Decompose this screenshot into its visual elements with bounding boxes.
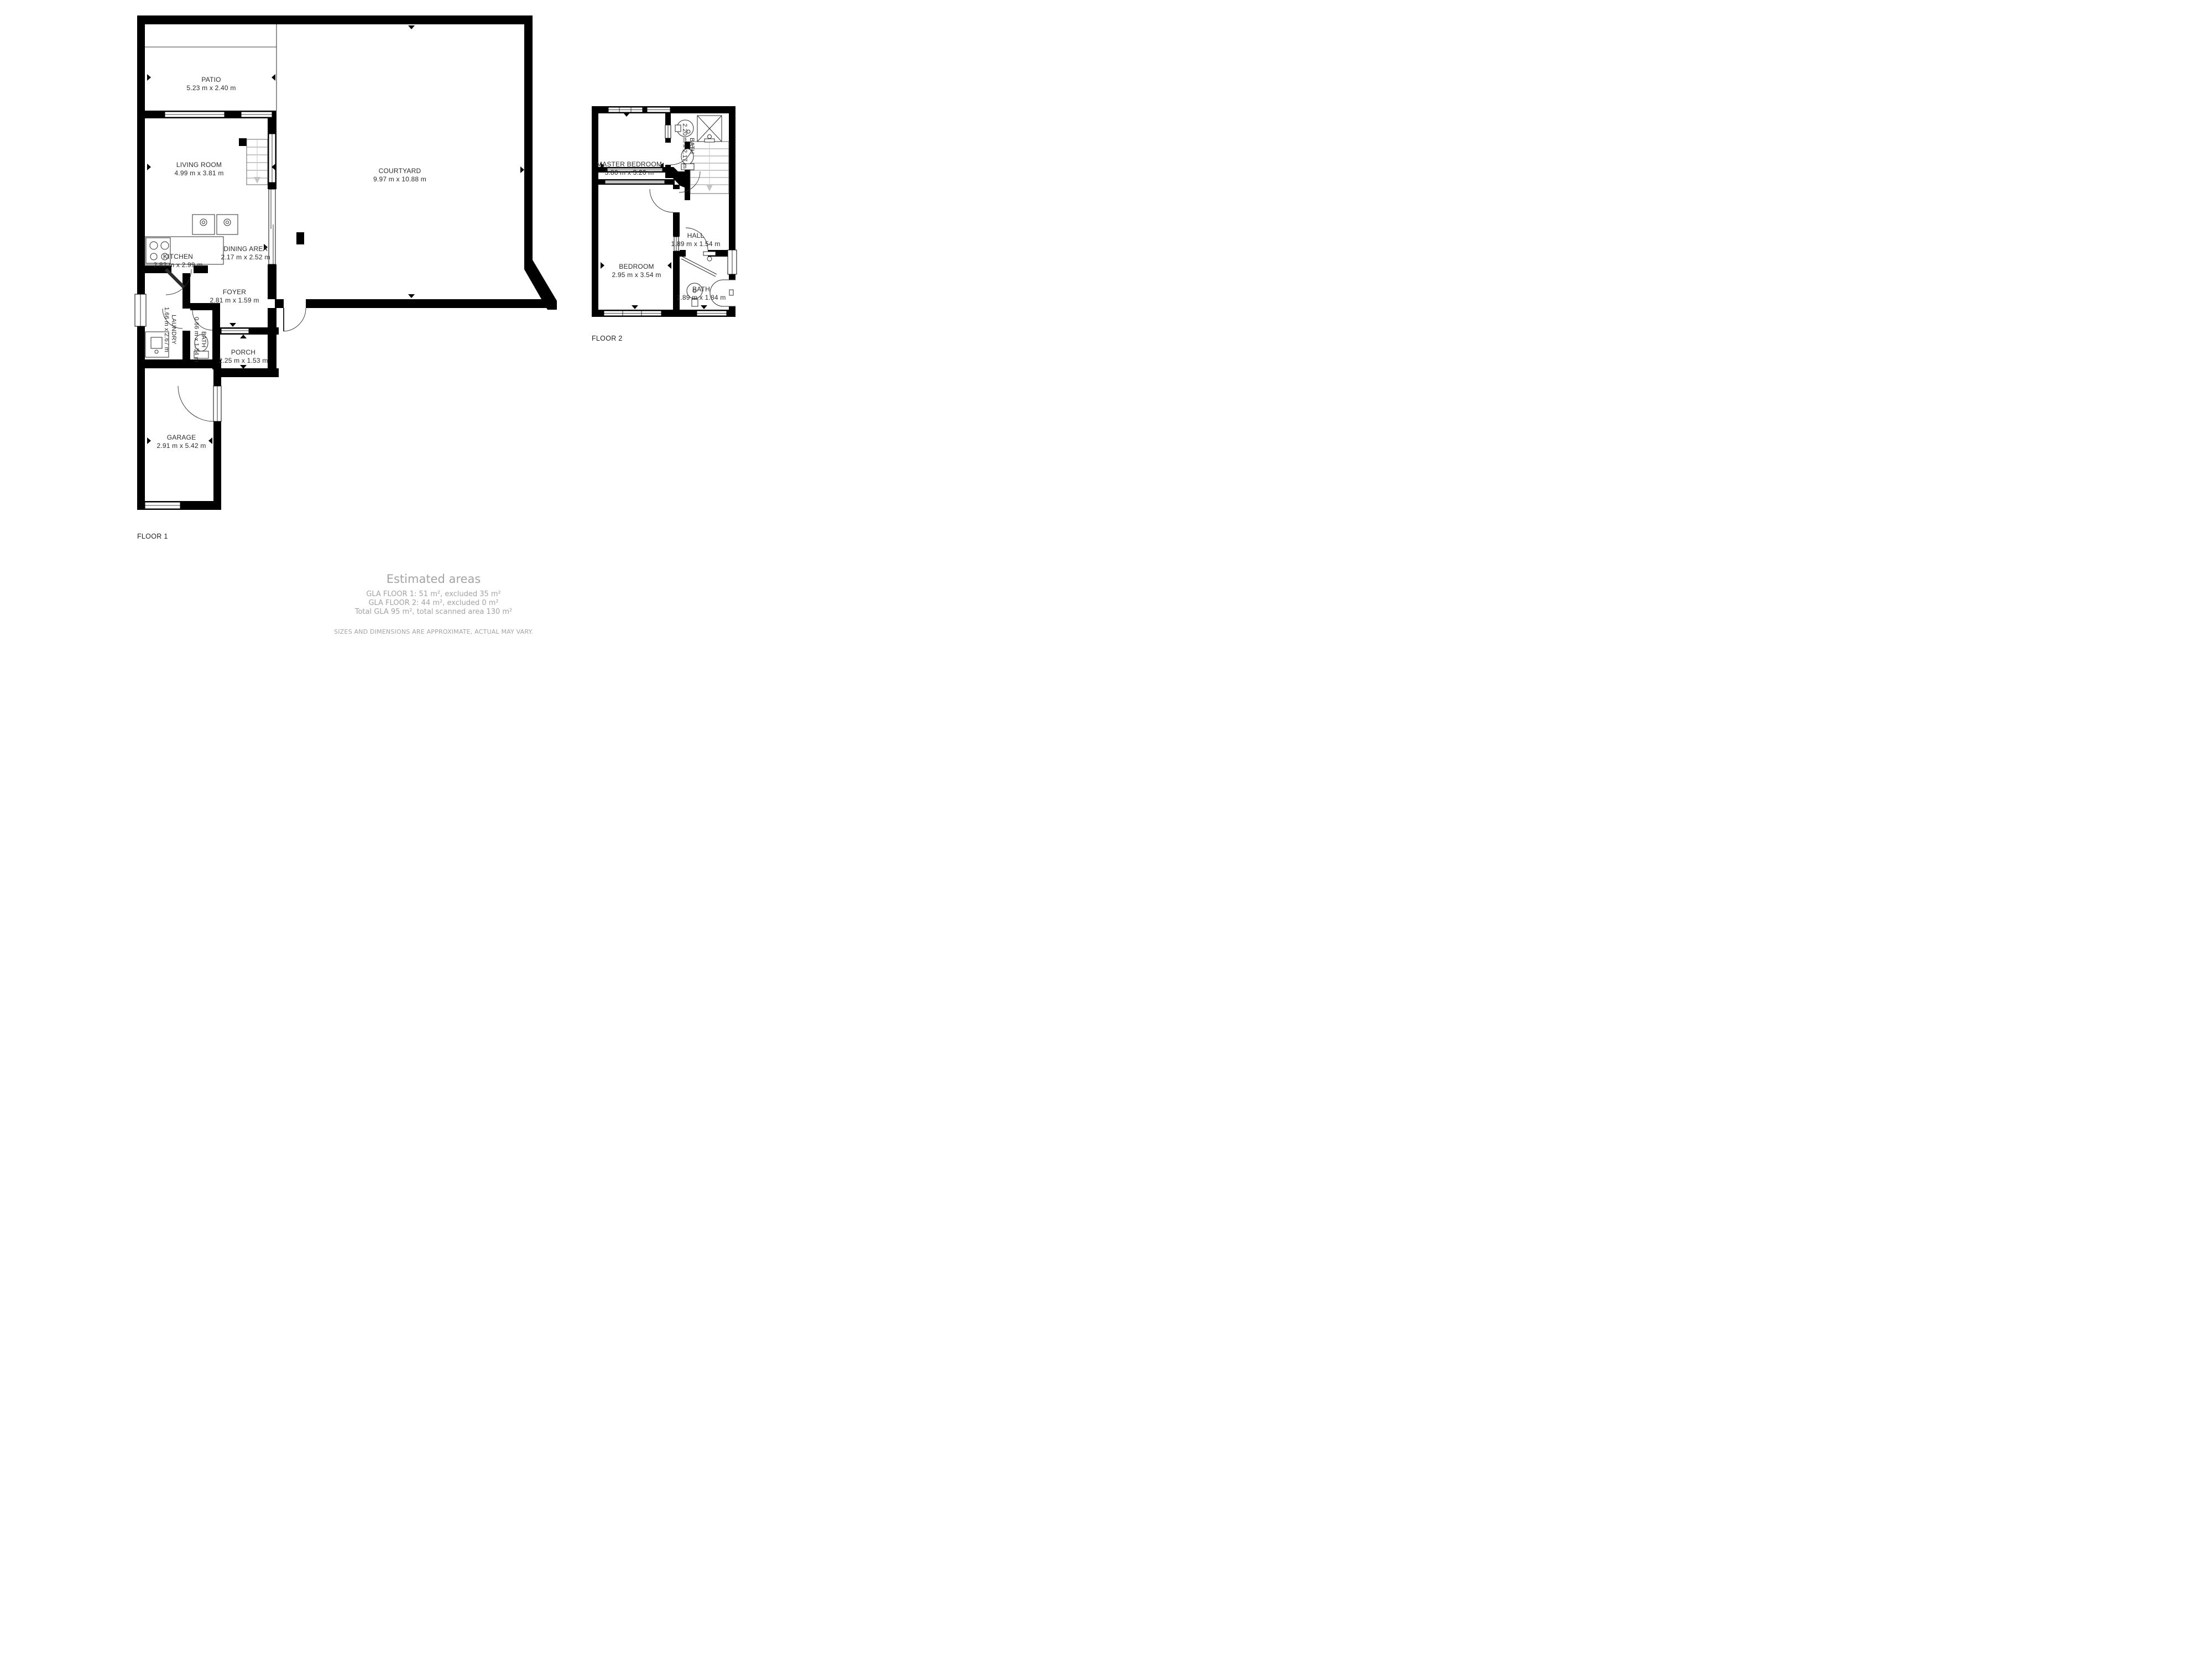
room-label-foyer: FOYER 2.81 m x 1.59 m [210,288,259,305]
room-name: PORCH [218,348,268,357]
staircase-icon [247,139,268,185]
room-dims: 3.86 m x 3.20 m [597,169,662,177]
room-name: BATH [200,317,207,362]
room-name: GARAGE [156,434,206,442]
floor2-tag: FLOOR 2 [592,335,623,342]
disclaimer-text: SIZES AND DIMENSIONS ARE APPROXIMATE, AC… [334,628,533,635]
kitchen-sink-icon [192,215,238,234]
estimated-areas-title: Estimated areas [355,572,513,586]
gla-floor1-line: GLA FLOOR 1: 51 m², excluded 35 m² [355,590,513,599]
room-name: BATH [676,285,726,294]
room-dims: 2.91 m x 5.42 m [156,442,206,450]
room-label-bedroom: BEDROOM 2.95 m x 3.54 m [612,263,661,279]
room-name: COURTYARD [373,167,426,175]
room-label-bath-bottom: BATH 1.89 m x 1.84 m [676,285,726,302]
room-label-patio: PATIO 5.23 m x 2.40 m [186,76,236,92]
room-dims: 0.66 m x 1.54 m [192,317,200,362]
room-name: DINING AREA [221,245,270,253]
floorplan-page: PATIO 5.23 m x 2.40 m LIVING ROOM 4.99 m… [0,0,867,650]
room-label-porch: PORCH 2.25 m x 1.53 m [218,348,268,365]
room-name: BEDROOM [612,263,661,271]
room-label-dining-area: DINING AREA 2.17 m x 2.52 m [221,245,270,262]
room-label-garage: GARAGE 2.91 m x 5.42 m [156,434,206,450]
estimated-areas-block: Estimated areas GLA FLOOR 1: 51 m², excl… [355,572,513,617]
room-name: KITCHEN [153,253,202,261]
room-label-master-bedroom: MASTER BEDROOM 3.86 m x 3.20 m [597,160,662,177]
room-label-bath-top: BATH 2.20 m x 2.17 m [681,123,695,169]
room-dims: 2.17 m x 2.52 m [221,253,270,262]
staircase-icon-floor2 [690,142,729,194]
room-label-kitchen: KITCHEN 2.82 m x 2.99 m [153,253,202,269]
room-name: MASTER BEDROOM [597,160,662,169]
room-dims: 1.89 m x 1.54 m [671,240,720,248]
gla-total-line: Total GLA 95 m², total scanned area 130 … [355,608,513,617]
room-label-laundry: LAUNDRY 1.66 m x 2.67 m [163,307,177,352]
room-dims: 1.66 m x 2.67 m [163,307,170,352]
room-dims: 2.81 m x 1.59 m [210,296,259,305]
room-name: BATH [688,123,695,169]
room-dims: 5.23 m x 2.40 m [186,84,236,92]
room-dims: 4.99 m x 3.81 m [174,169,223,178]
room-dims: 9.97 m x 10.88 m [373,175,426,184]
floorplan-svg [0,0,867,650]
room-name: LIVING ROOM [174,161,223,169]
floor1-tag: FLOOR 1 [137,533,168,540]
room-label-courtyard: COURTYARD 9.97 m x 10.88 m [373,167,426,184]
room-name: FOYER [210,288,259,296]
room-name: LAUNDRY [170,307,177,352]
room-label-bath-floor1: BATH 0.66 m x 1.54 m [192,317,207,362]
room-name: PATIO [186,76,236,84]
gla-floor2-line: GLA FLOOR 2: 44 m², excluded 0 m² [355,599,513,608]
shower-icon [697,116,722,142]
room-label-hall: HALL 1.89 m x 1.54 m [671,232,720,248]
room-dims: 2.20 m x 2.17 m [681,123,688,169]
room-dims: 1.89 m x 1.84 m [676,294,726,302]
room-dims: 2.25 m x 1.53 m [218,357,268,365]
room-dims: 2.95 m x 3.54 m [612,271,661,279]
room-name: HALL [671,232,720,240]
floor1-patio-boundary [145,24,276,111]
room-label-living-room: LIVING ROOM 4.99 m x 3.81 m [174,161,223,178]
room-dims: 2.82 m x 2.99 m [153,261,202,269]
